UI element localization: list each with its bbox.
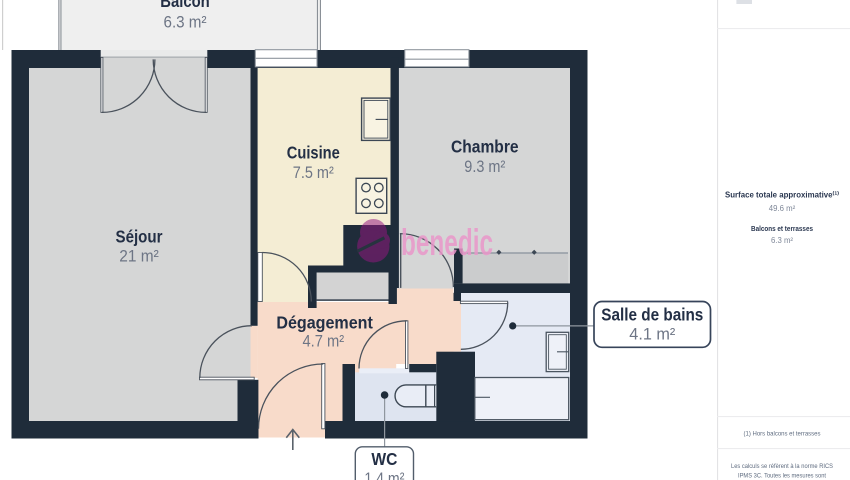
svg-text:Cuisine: Cuisine: [287, 143, 340, 163]
svg-text:4.7 m²: 4.7 m²: [302, 333, 344, 351]
svg-text:Séjour: Séjour: [116, 227, 163, 247]
svg-text:Chambre: Chambre: [451, 137, 519, 157]
svg-text:7.5 m²: 7.5 m²: [293, 164, 334, 182]
svg-text:WC: WC: [371, 449, 397, 469]
svg-text:4.1 m²: 4.1 m²: [629, 326, 675, 344]
svg-text:6.3 m²: 6.3 m²: [771, 236, 793, 245]
svg-text:Salle de bains: Salle de bains: [601, 305, 703, 325]
svg-text:Dégagement: Dégagement: [276, 313, 373, 333]
svg-text:49.6 m²: 49.6 m²: [769, 204, 796, 213]
svg-text:Les calculs se réfèrent à la n: Les calculs se réfèrent à la norme RICS: [731, 463, 833, 470]
svg-text:benedic: benedic: [401, 222, 493, 263]
svg-text:Surface totale approximative⁽¹: Surface totale approximative⁽¹⁾: [725, 190, 839, 200]
svg-text:(1) Hors balcons et terrasses: (1) Hors balcons et terrasses: [744, 431, 822, 438]
svg-text:Balcon: Balcon: [160, 0, 210, 11]
svg-text:21 m²: 21 m²: [119, 248, 159, 266]
svg-text:Balcons et terrasses: Balcons et terrasses: [751, 224, 813, 233]
svg-text:9.3 m²: 9.3 m²: [464, 158, 505, 176]
svg-text:6.3 m²: 6.3 m²: [164, 14, 207, 32]
svg-text:IPMS 3C. Toutes les mesures so: IPMS 3C. Toutes les mesures sont: [738, 473, 826, 480]
svg-text:1.4 m²: 1.4 m²: [364, 470, 404, 480]
